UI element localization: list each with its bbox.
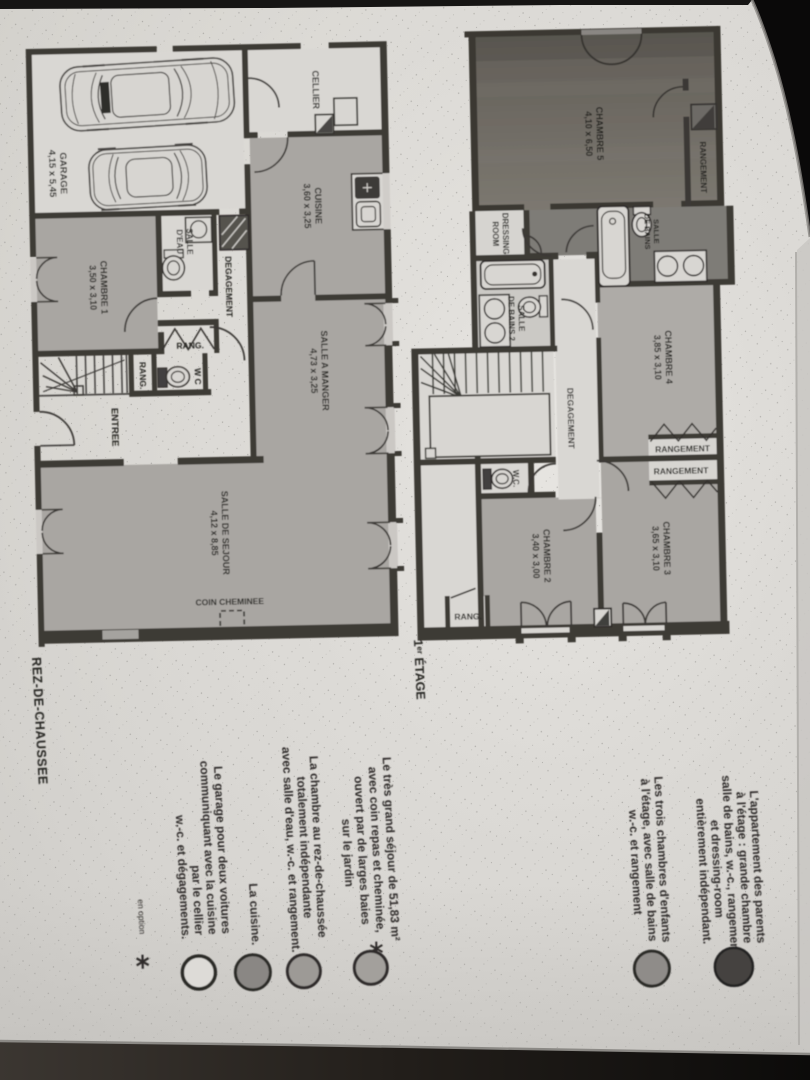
svg-text:COIN CHEMINEE: COIN CHEMINEE	[195, 596, 264, 607]
svg-text:DE BAINS 2: DE BAINS 2	[506, 296, 516, 342]
svg-text:L'appartement des parents à l': L'appartement des parents à l'étage : gr…	[692, 773, 769, 966]
svg-text:SALLE DE SEJOUR: SALLE DE SEJOUR	[219, 491, 231, 576]
svg-text:CHAMBRE 3: CHAMBRE 3	[661, 521, 672, 575]
svg-text:3,60 x 3,25: 3,60 x 3,25	[302, 183, 313, 228]
svg-text:CHAMBRE 5: CHAMBRE 5	[594, 107, 605, 161]
svg-text:ENTREE: ENTREE	[109, 408, 121, 447]
svg-text:4,12 x 8,85: 4,12 x 8,85	[209, 510, 220, 555]
svg-text:4,15 x 5,45: 4,15 x 5,45	[46, 150, 58, 198]
svg-text:CHAMBRE 1: CHAMBRE 1	[98, 261, 109, 315]
svg-text:DEGAGEMENT: DEGAGEMENT	[565, 388, 576, 450]
svg-text:RANG.: RANG.	[454, 611, 482, 622]
svg-text:3,65 x 3,10: 3,65 x 3,10	[650, 526, 661, 571]
svg-text:RANGEMENT: RANGEMENT	[655, 443, 711, 454]
svg-text:D'EAU: D'EAU	[175, 229, 185, 254]
svg-text:DEGAGEMENT: DEGAGEMENT	[223, 256, 234, 318]
svg-text:4,10 x 6,50: 4,10 x 6,50	[583, 111, 594, 156]
svg-text:W C: W C	[193, 368, 203, 385]
svg-text:3,40 x 3,00: 3,40 x 3,00	[530, 533, 541, 578]
svg-text:RANG.: RANG.	[176, 340, 204, 351]
svg-text:CHAMBRE 2: CHAMBRE 2	[541, 529, 552, 583]
svg-text:DRESSING: DRESSING	[500, 213, 510, 255]
svg-text:SALLE: SALLE	[185, 228, 195, 255]
svg-text:RANG.: RANG.	[138, 362, 149, 390]
svg-text:SALLE: SALLE	[516, 305, 526, 332]
svg-text:3,50 x 3,10: 3,50 x 3,10	[87, 265, 98, 310]
svg-text:SALLE A MANGER: SALLE A MANGER	[319, 330, 331, 411]
svg-text:CELLIER: CELLIER	[310, 70, 321, 109]
svg-text:en option: en option	[136, 899, 148, 935]
svg-text:GARAGE: GARAGE	[57, 152, 69, 194]
svg-text:4,73 x 3,25: 4,73 x 3,25	[308, 348, 319, 393]
svg-text:DE BAINS: DE BAINS	[642, 214, 652, 250]
svg-text:3,85 x 3,10: 3,85 x 3,10	[652, 335, 663, 380]
svg-text:CHAMBRE 4: CHAMBRE 4	[663, 330, 674, 384]
svg-text:ROOM: ROOM	[491, 221, 501, 246]
svg-text:RANGEMENT: RANGEMENT	[654, 465, 710, 476]
svg-text:RANGEMENT: RANGEMENT	[698, 141, 708, 193]
svg-text:CUISINE: CUISINE	[313, 187, 324, 224]
svg-text:W.C.: W.C.	[511, 470, 520, 488]
